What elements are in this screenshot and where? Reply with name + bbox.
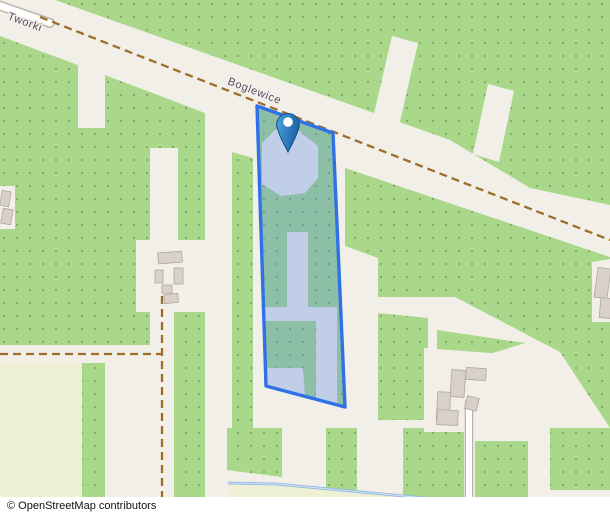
osm-map-widget: Tworki Boglewice © OpenStreetMap contrib… xyxy=(0,0,610,515)
parcel-polygon[interactable] xyxy=(250,100,350,412)
map-canvas[interactable]: Tworki Boglewice xyxy=(0,0,610,497)
osm-attribution-link[interactable]: © OpenStreetMap contributors xyxy=(7,500,156,512)
map-viewport[interactable]: Tworki Boglewice xyxy=(0,0,610,497)
attribution-bar: © OpenStreetMap contributors xyxy=(0,497,610,515)
